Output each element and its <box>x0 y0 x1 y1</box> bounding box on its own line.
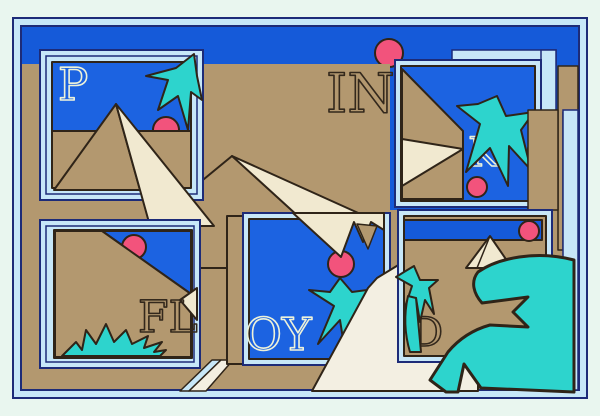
pink-floyd-postcard: IN P K <box>0 0 600 416</box>
letter-oy: OY <box>245 308 313 361</box>
panel-p: P <box>40 50 214 226</box>
letter-fl: FL <box>138 292 198 343</box>
right-tan-wedge <box>528 110 558 210</box>
sun-icon-k <box>467 177 487 197</box>
panel-fl: FL <box>40 220 200 368</box>
sun-icon-d <box>519 221 539 241</box>
letter-p: P <box>58 58 88 111</box>
letter-in: IN <box>326 62 395 125</box>
panel-k-right-band <box>541 50 556 114</box>
postcard-artwork: IN P K <box>0 0 600 416</box>
